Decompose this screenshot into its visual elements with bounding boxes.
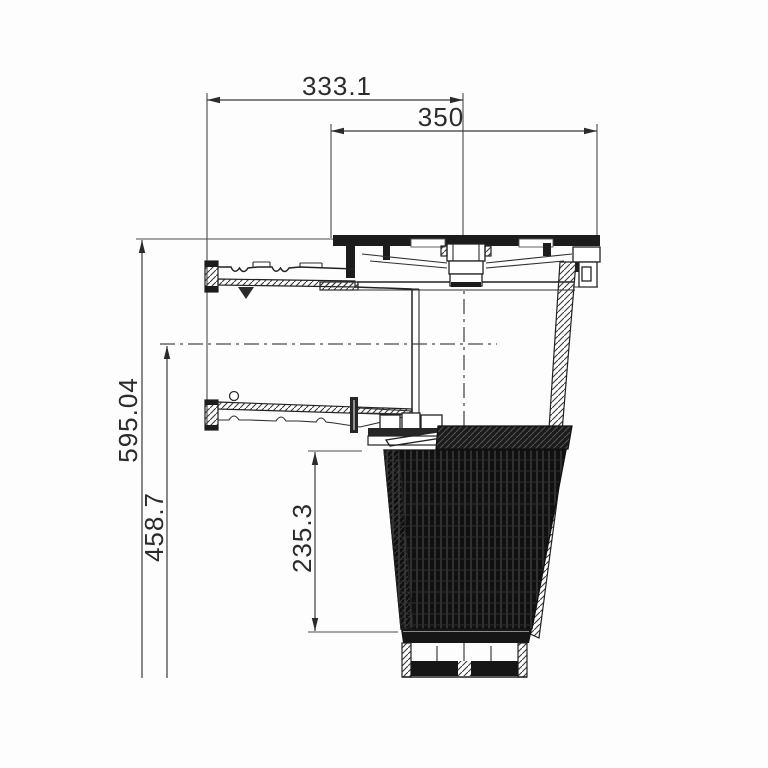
- dimension-label-basket-height: 235.3: [287, 503, 317, 573]
- dimension-label-centerline-to-bottom: 458.7: [139, 492, 169, 562]
- basket-rim: [436, 426, 572, 449]
- drawing-canvas: 333.1 350 595.04 458.7 235.3: [0, 0, 768, 768]
- dimension-label-flange-to-centerline: 333.1: [302, 71, 372, 101]
- dimension-label-cover-width: 350: [418, 102, 464, 132]
- dimension-label-overall-height: 595.04: [113, 377, 143, 463]
- skimmer-technical-drawing: 333.1 350 595.04 458.7 235.3: [0, 0, 768, 768]
